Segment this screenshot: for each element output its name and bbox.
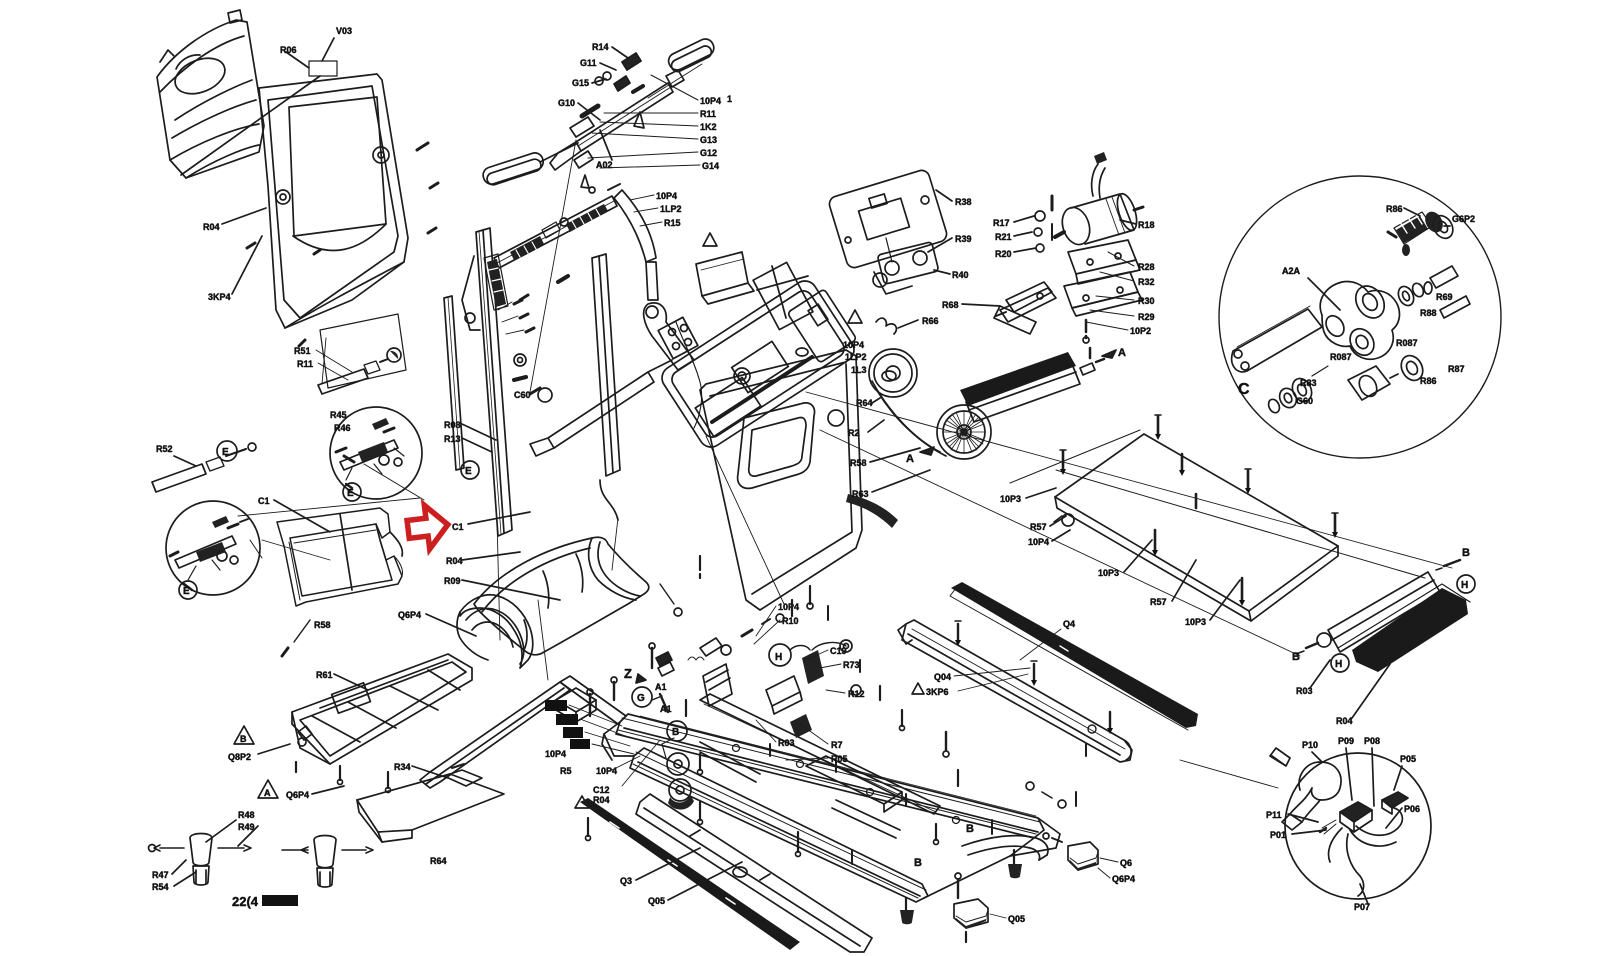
svg-text:G13: G13 <box>700 135 717 145</box>
svg-text:R05: R05 <box>831 754 848 764</box>
svg-text:P01: P01 <box>1270 830 1286 840</box>
svg-text:C60: C60 <box>514 390 531 400</box>
svg-text:R04: R04 <box>593 795 610 805</box>
svg-text:A2A: A2A <box>1282 266 1301 276</box>
svg-text:10P4: 10P4 <box>843 340 864 350</box>
svg-text:R58: R58 <box>314 620 331 630</box>
svg-text:B: B <box>672 727 679 738</box>
svg-text:Q6P4: Q6P4 <box>398 610 421 620</box>
svg-text:R08: R08 <box>444 420 461 430</box>
svg-text:10P4: 10P4 <box>656 191 677 201</box>
svg-text:R2: R2 <box>848 428 860 438</box>
svg-text:R57: R57 <box>1150 597 1167 607</box>
svg-text:P05: P05 <box>1400 754 1416 764</box>
svg-text:R52: R52 <box>156 444 173 454</box>
svg-text:10P4: 10P4 <box>596 766 617 776</box>
svg-text:B: B <box>240 734 247 744</box>
svg-text:H: H <box>775 652 782 663</box>
svg-text:R46: R46 <box>334 423 351 433</box>
svg-text:R7: R7 <box>831 740 843 750</box>
svg-text:10P2: 10P2 <box>1130 326 1151 336</box>
svg-text:R54: R54 <box>152 882 169 892</box>
svg-text:1LP2: 1LP2 <box>845 352 867 362</box>
svg-text:R49: R49 <box>238 822 255 832</box>
svg-text:R30: R30 <box>1138 296 1155 306</box>
svg-text:Q04: Q04 <box>934 672 951 682</box>
svg-text:P09: P09 <box>1338 736 1354 746</box>
svg-text:1K2: 1K2 <box>700 122 717 132</box>
svg-text:R87: R87 <box>1448 364 1465 374</box>
svg-text:Q6P4: Q6P4 <box>286 790 309 800</box>
svg-text:10P4: 10P4 <box>545 749 566 759</box>
svg-text:C1: C1 <box>258 496 270 506</box>
svg-text:C1: C1 <box>452 522 464 532</box>
svg-text:R087: R087 <box>1330 352 1352 362</box>
svg-text:R15: R15 <box>664 218 681 228</box>
svg-text:R32: R32 <box>1138 277 1155 287</box>
svg-text:R38: R38 <box>955 197 972 207</box>
svg-text:R68: R68 <box>942 300 959 310</box>
svg-text:10P4: 10P4 <box>1028 537 1049 547</box>
svg-text:R20: R20 <box>995 249 1012 259</box>
svg-text:G6P2: G6P2 <box>1452 214 1475 224</box>
svg-text:R28: R28 <box>1138 262 1155 272</box>
svg-text:A02: A02 <box>596 160 613 170</box>
svg-text:R51: R51 <box>294 346 311 356</box>
svg-text:B: B <box>914 857 922 869</box>
svg-text:R11: R11 <box>297 359 313 369</box>
svg-text:G14: G14 <box>702 161 719 171</box>
svg-text:Q4: Q4 <box>1063 619 1075 629</box>
svg-text:E: E <box>222 447 229 458</box>
svg-text:P11: P11 <box>1266 810 1282 820</box>
svg-text:10P4: 10P4 <box>778 602 799 612</box>
svg-text:R04: R04 <box>1336 716 1353 726</box>
svg-text:R11: R11 <box>700 109 716 119</box>
svg-text:R64: R64 <box>430 856 447 866</box>
svg-text:P06: P06 <box>1404 804 1420 814</box>
svg-text:G15: G15 <box>572 78 589 88</box>
svg-text:Q3: Q3 <box>620 876 632 886</box>
svg-text:P10: P10 <box>1302 740 1318 750</box>
svg-text:R61: R61 <box>316 670 333 680</box>
svg-text:3KP4: 3KP4 <box>208 292 231 302</box>
svg-text:R5: R5 <box>560 766 572 776</box>
svg-text:R48: R48 <box>238 810 255 820</box>
svg-text:Q05: Q05 <box>1008 914 1025 924</box>
svg-text:A: A <box>906 453 914 465</box>
svg-text:Q05: Q05 <box>648 896 665 906</box>
svg-text:R86: R86 <box>1420 376 1437 386</box>
svg-text:1: 1 <box>727 94 732 104</box>
svg-text:R14: R14 <box>592 42 609 52</box>
svg-text:R69: R69 <box>1436 292 1453 302</box>
svg-text:R86: R86 <box>1386 204 1403 214</box>
svg-text:B: B <box>966 823 974 835</box>
svg-text:R63: R63 <box>852 489 869 499</box>
svg-text:G60: G60 <box>1296 396 1313 406</box>
svg-text:G10: G10 <box>558 98 575 108</box>
svg-text:R087: R087 <box>1396 338 1418 348</box>
svg-text:10P4: 10P4 <box>700 96 721 106</box>
svg-text:1L3: 1L3 <box>851 365 867 375</box>
svg-text:R34: R34 <box>394 762 411 772</box>
svg-text:R13: R13 <box>444 434 461 444</box>
svg-text:R17: R17 <box>993 218 1010 228</box>
svg-text:H: H <box>1461 580 1468 591</box>
svg-text:R47: R47 <box>152 870 169 880</box>
svg-text:R73: R73 <box>843 660 860 670</box>
svg-text:10P3: 10P3 <box>1000 494 1021 504</box>
svg-text:Q6P4: Q6P4 <box>1112 874 1135 884</box>
svg-text:Z: Z <box>624 666 632 681</box>
svg-text:R39: R39 <box>955 234 972 244</box>
svg-text:R21: R21 <box>995 232 1012 242</box>
svg-text:R58: R58 <box>850 458 867 468</box>
svg-text:R45: R45 <box>330 410 347 420</box>
svg-text:G: G <box>637 693 645 704</box>
svg-text:R88: R88 <box>1420 308 1437 318</box>
svg-text:P08: P08 <box>1364 736 1380 746</box>
svg-text:A: A <box>1118 347 1126 359</box>
svg-text:A1: A1 <box>655 682 667 692</box>
svg-text:C12: C12 <box>593 785 610 795</box>
svg-text:R40: R40 <box>952 270 969 280</box>
svg-text:Q8P2: Q8P2 <box>228 752 251 762</box>
svg-text:G11: G11 <box>580 58 597 68</box>
svg-text:R18: R18 <box>1138 220 1155 230</box>
svg-text:E: E <box>183 586 190 597</box>
svg-text:10P3: 10P3 <box>1185 617 1206 627</box>
svg-text:R83: R83 <box>1300 378 1317 388</box>
svg-text:R09: R09 <box>444 576 461 586</box>
svg-text:C: C <box>1238 381 1250 398</box>
svg-text:E: E <box>347 488 354 499</box>
svg-text:B: B <box>1462 547 1470 559</box>
svg-text:R04: R04 <box>446 556 463 566</box>
svg-text:3KP6: 3KP6 <box>926 687 949 697</box>
svg-text:V03: V03 <box>336 26 352 36</box>
svg-text:Q6: Q6 <box>1120 858 1132 868</box>
svg-text:R04: R04 <box>203 222 220 232</box>
svg-text:G12: G12 <box>700 148 717 158</box>
svg-text:H: H <box>1335 659 1342 670</box>
svg-text:R03: R03 <box>778 738 795 748</box>
svg-text:R06: R06 <box>280 45 297 55</box>
svg-text:R29: R29 <box>1138 312 1155 322</box>
svg-text:22(4: 22(4 <box>232 894 259 909</box>
svg-text:E: E <box>465 466 472 477</box>
svg-text:1LP2: 1LP2 <box>660 204 682 214</box>
svg-text:A: A <box>264 788 271 798</box>
svg-text:R66: R66 <box>922 316 939 326</box>
